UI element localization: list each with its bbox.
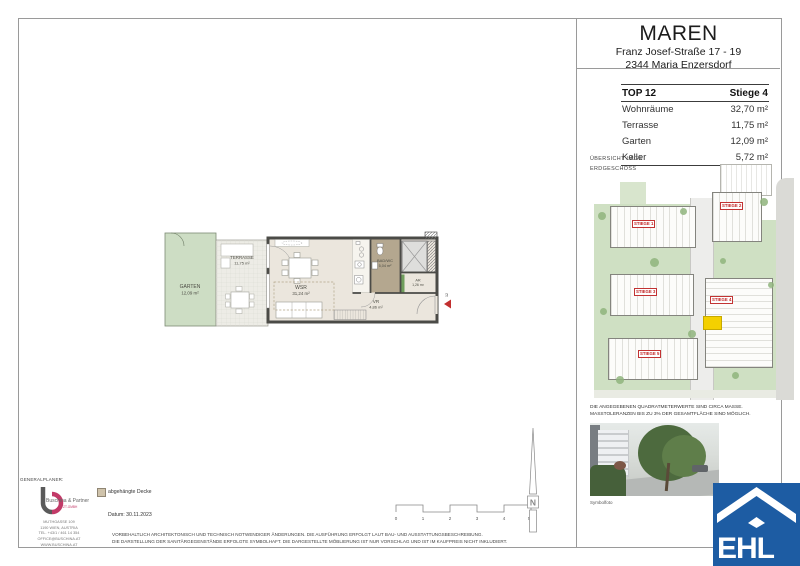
window-glazing	[267, 244, 270, 308]
ehl-logo: EHL	[713, 483, 800, 566]
entrance-arrow-icon	[444, 300, 451, 309]
document-page: MAREN Franz Josef-Straße 17 - 19 2344 Ma…	[0, 0, 800, 566]
sqm-note-line1: DIE ANGEGEBENEN QUADRATMETERWERTE SIND C…	[590, 404, 795, 411]
scale-tick: 4	[503, 516, 506, 521]
legend-swatch	[97, 488, 106, 497]
shaft-hatch	[428, 241, 436, 272]
project-title: MAREN	[577, 22, 780, 46]
tree-icon	[598, 212, 606, 220]
company-subtitle: ZT-GMBH	[63, 505, 77, 509]
site-plan: STIEGE 1 STIEGE 2 STIEGE 3 STIEGE 4 STIE…	[592, 162, 794, 400]
row-label: Garten	[622, 136, 651, 147]
company-address: MUTHGASSE 109 1190 WIEN, AUSTRIA TEL. +4…	[20, 520, 98, 548]
unit-stiege-label: Stiege 4	[730, 88, 768, 99]
table-row: Terrasse 11,75 m²	[621, 118, 769, 134]
building-stiege-2	[712, 192, 762, 242]
row-value: 11,75 m²	[731, 120, 768, 131]
stiege-4-label: STIEGE 4	[710, 296, 733, 304]
project-address-line1: Franz Josef-Straße 17 - 19	[577, 46, 780, 59]
scale-tick: 1	[422, 516, 425, 521]
row-value: 12,09 m²	[731, 136, 769, 147]
wardrobe-strip	[401, 275, 405, 293]
legend-label: abgehängte Decke	[108, 489, 152, 495]
north-label: N	[530, 498, 536, 508]
scale-tick: 3	[476, 516, 479, 521]
ehl-logo-text: EHL	[717, 532, 774, 566]
sqm-note: DIE ANGEGEBENEN QUADRATMETERWERTE SIND C…	[590, 404, 795, 419]
disclaimer: VORBEHALTLICH ARCHITEKTONISCH UND TECHNI…	[112, 531, 672, 545]
scale-bar: 0 1 2 3 4 5m	[390, 498, 538, 524]
plan-date: Datum: 30.11.2023	[108, 512, 152, 518]
garten-label: GARTEN	[180, 284, 201, 290]
building-stiege-5	[608, 338, 698, 380]
tree-icon	[650, 258, 659, 267]
terrasse-area: 11,75 m²	[234, 261, 250, 266]
stiege-5-label: STIEGE 5	[638, 350, 661, 358]
sqm-note-line2: MASSTOLERANZEN BIS ZU 3% DER GESAMTFLÄCH…	[590, 411, 795, 418]
tree-icon	[680, 208, 687, 215]
photo-red-shrub	[614, 461, 626, 470]
unit-table-header: TOP 12 Stiege 4	[621, 84, 769, 102]
property-photo	[590, 423, 719, 496]
disclaimer-line2: DIE DARSTELLUNG DER SANITÄRGEGENSTÄNDE E…	[112, 538, 672, 545]
table-row: Wohnräume 32,70 m²	[621, 102, 769, 118]
company-name: Buschina & Partner	[46, 498, 89, 504]
duct-hatch	[425, 232, 437, 239]
project-address-line2: 2344 Maria Enzersdorf	[577, 59, 780, 72]
room-garten	[165, 233, 216, 326]
table-row: Garten 12,09 m²	[621, 134, 769, 150]
bad-wc-area: 5,04 m²	[379, 264, 393, 268]
disclaimer-line1: VORBEHALTLICH ARCHITEKTONISCH UND TECHNI…	[112, 531, 672, 538]
ar-label: AR	[415, 279, 421, 283]
garten-area: 12,09 m²	[181, 291, 199, 296]
wsr-area: 31,24 m²	[292, 291, 310, 296]
scale-tick: 0	[395, 516, 398, 521]
tree-icon	[720, 258, 726, 264]
stiege-2-label: STIEGE 2	[720, 202, 743, 210]
tree-icon	[688, 330, 696, 338]
floor-plan: GARTEN 12,09 m² TERRASSE 11,75 m² WSR 31…	[163, 228, 455, 333]
terrasse-label: TERRASSE	[230, 255, 254, 260]
row-label: Wohnräume	[622, 104, 674, 115]
project-header: MAREN Franz Josef-Straße 17 - 19 2344 Ma…	[577, 19, 780, 69]
row-label: Terrasse	[622, 120, 658, 131]
vr-label: VR	[373, 299, 380, 304]
tree-icon	[732, 372, 739, 379]
bad-wc-label: BAD/WC	[377, 258, 393, 263]
generalplaner-heading: GENERALPLANER:	[20, 477, 64, 482]
highlighted-unit	[703, 316, 722, 330]
column-divider	[576, 18, 577, 547]
floor-plan-drawing: GARTEN 12,09 m² TERRASSE 11,75 m² WSR 31…	[163, 228, 455, 333]
row-value: 32,70 m²	[731, 104, 769, 115]
vr-area: 4,86 m²	[369, 305, 383, 310]
tree-icon	[768, 282, 774, 288]
site-road-right	[776, 178, 794, 400]
photo-car	[692, 465, 708, 472]
photo-caption: Symbolfoto	[590, 500, 613, 505]
site-sidewalk	[594, 390, 776, 398]
company-address-line: WWW.BUSCHINA.AT	[20, 543, 98, 549]
unit-info-table: TOP 12 Stiege 4 Wohnräume 32,70 m² Terra…	[621, 84, 769, 166]
entrance-number: 12	[445, 293, 449, 297]
scale-tick: 2	[449, 516, 452, 521]
site-green-area	[620, 182, 646, 204]
ar-area: 1,26 m²	[412, 283, 425, 287]
unit-top-label: TOP 12	[622, 88, 656, 99]
north-arrow-icon: N	[521, 428, 545, 534]
tree-icon	[616, 376, 624, 384]
stiege-3-label: STIEGE 3	[634, 288, 657, 296]
tree-icon	[600, 308, 607, 315]
tree-icon	[760, 198, 768, 206]
stiege-1-label: STIEGE 1	[632, 220, 655, 228]
